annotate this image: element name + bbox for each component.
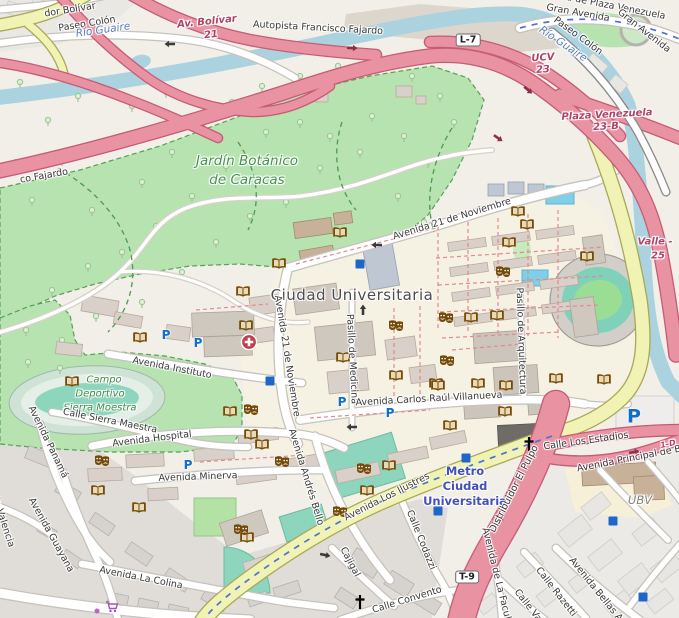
library-icon bbox=[64, 376, 80, 389]
street-label: co Fajardo bbox=[19, 166, 69, 185]
library-icon bbox=[243, 429, 259, 442]
street-label: Gran Avenida bbox=[546, 2, 611, 24]
library-icon bbox=[239, 532, 255, 545]
motorway-label: Av. Bolívar bbox=[177, 13, 238, 30]
motorway-label: 21 bbox=[204, 29, 219, 41]
place-of-worship-icon bbox=[524, 437, 535, 451]
motorway-label: 23-B bbox=[593, 121, 619, 133]
library-icon bbox=[359, 485, 375, 498]
street-label: Autopista Francisco Fajardo bbox=[253, 19, 383, 37]
street-label: Calle Convento bbox=[371, 584, 443, 616]
library-icon bbox=[463, 312, 479, 325]
motorway-label: Valle - bbox=[638, 237, 673, 248]
library-icon bbox=[388, 370, 404, 383]
street-label: Avenida Bellas Ar bbox=[567, 555, 628, 618]
library-icon bbox=[254, 439, 270, 452]
motorway-label: Plaza Venezuela bbox=[561, 107, 653, 123]
motorway-label: 23 bbox=[536, 64, 551, 76]
library-icon bbox=[442, 420, 458, 433]
parking-icon: P bbox=[162, 329, 171, 341]
street-label: Avenida Panamá bbox=[26, 404, 71, 480]
campus-label: UBV bbox=[628, 493, 652, 507]
street-label: Calle Sierra Maestra bbox=[62, 406, 158, 435]
street-label: Avenida Minerva bbox=[158, 470, 237, 484]
map-canvas[interactable]: PPPPPPdor BolívarPaseo ColónAutopista Fr… bbox=[0, 0, 679, 618]
metro-station-label: Ciudad bbox=[443, 479, 488, 493]
street-label: Pasillo de Arquitectura bbox=[514, 287, 529, 394]
water-label: Río Guaire bbox=[75, 20, 131, 40]
street-label: Avenida 21 de Noviembre bbox=[392, 196, 513, 242]
metro-entrance-icon bbox=[266, 377, 275, 386]
library-icon bbox=[238, 320, 254, 333]
metro-entrance-icon bbox=[639, 593, 648, 602]
water-label: Río Guaire bbox=[537, 24, 589, 65]
park-label: Campo bbox=[86, 375, 121, 386]
route-ref-badge: L-7 bbox=[456, 34, 481, 47]
street-label: Paseo Colón bbox=[58, 14, 117, 34]
street-label: a de Plaza Venezuela bbox=[566, 0, 667, 22]
park-label: Sierra Moestra bbox=[63, 403, 136, 414]
library-icon bbox=[430, 380, 446, 393]
street-label: Avenida La Colina bbox=[98, 565, 183, 592]
street-label: Distribuidor El Pulpo bbox=[487, 444, 541, 535]
street-label: Avenida Guayana bbox=[26, 496, 76, 574]
map-overlay: PPPPPPdor BolívarPaseo ColónAutopista Fr… bbox=[0, 0, 679, 618]
theatre-icon bbox=[243, 404, 259, 416]
street-label: Cajigal bbox=[338, 545, 363, 579]
park-label: Jardín Botánico bbox=[196, 153, 298, 169]
metro-entrance-icon bbox=[609, 517, 618, 526]
library-icon bbox=[222, 406, 238, 419]
street-label: Avenida Instituto bbox=[132, 355, 213, 381]
park-label: de Caracas bbox=[209, 172, 284, 188]
library-icon bbox=[470, 378, 486, 391]
library-icon bbox=[335, 352, 351, 365]
street-label: Gran Avenida bbox=[615, 7, 672, 55]
metro-station-label: Metro bbox=[446, 464, 484, 478]
library-icon bbox=[548, 373, 564, 386]
library-icon bbox=[489, 310, 505, 323]
metro-entrance-icon bbox=[356, 260, 365, 269]
street-label: Avenida Los Ilustres bbox=[342, 471, 431, 524]
street-label: Avenida Principal de B bbox=[576, 444, 679, 475]
library-icon bbox=[332, 227, 348, 240]
library-icon bbox=[497, 406, 513, 419]
parking-icon: P bbox=[338, 396, 347, 408]
library-icon bbox=[381, 460, 397, 473]
theatre-icon bbox=[274, 456, 290, 468]
street-label: Calle Razetti bbox=[533, 565, 578, 618]
shop-icon bbox=[95, 609, 100, 614]
library-icon bbox=[596, 374, 612, 387]
street-label: Avenida Carlos Raúl Villanueva bbox=[355, 390, 502, 409]
theatre-icon bbox=[233, 524, 249, 536]
place-of-worship-icon bbox=[355, 595, 366, 609]
library-icon bbox=[498, 380, 514, 393]
parking-icon: P bbox=[184, 459, 193, 471]
theatre-icon bbox=[332, 506, 348, 518]
library-icon bbox=[519, 219, 535, 232]
street-label: Avenida Hospital bbox=[112, 429, 192, 450]
parking-icon-large: P bbox=[627, 408, 641, 427]
street-label: Avenida Andrés Bello bbox=[286, 427, 326, 526]
library-icon bbox=[501, 237, 517, 250]
parking-icon: P bbox=[386, 407, 395, 419]
library-icon bbox=[90, 485, 106, 498]
motorway-label: 25 bbox=[651, 251, 665, 262]
street-label: Pasillo de Medicina bbox=[344, 314, 360, 405]
theatre-icon bbox=[439, 355, 455, 367]
theatre-icon bbox=[356, 463, 372, 475]
library-icon bbox=[579, 251, 595, 264]
parking-icon: P bbox=[194, 337, 203, 349]
place-label: Ciudad Universitaria bbox=[271, 286, 434, 304]
library-icon bbox=[510, 206, 526, 219]
street-label: dor Bolívar bbox=[44, 1, 97, 20]
park-label: Deportivo bbox=[75, 389, 124, 400]
street-label: Paseo Colón bbox=[551, 15, 604, 58]
theatre-icon bbox=[438, 312, 454, 324]
motorway-label: 1-D bbox=[659, 438, 676, 450]
library-icon bbox=[132, 332, 148, 345]
library-icon bbox=[271, 258, 287, 271]
street-label: Calle Los Estadios bbox=[543, 430, 629, 453]
street-label: Calle Codazzi bbox=[404, 508, 438, 571]
theatre-icon bbox=[388, 320, 404, 332]
library-icon bbox=[235, 286, 251, 299]
route-ref-badge: T-9 bbox=[455, 571, 479, 584]
metro-entrance-icon bbox=[462, 454, 471, 463]
library-icon bbox=[428, 378, 444, 391]
theatre-icon bbox=[94, 455, 110, 467]
street-label: Avenida 21 de Noviembre bbox=[272, 294, 302, 417]
supermarket-icon bbox=[105, 601, 119, 613]
street-label: da Valencia bbox=[0, 493, 17, 548]
hospital-icon bbox=[241, 334, 258, 351]
metro-station-label: Universitaria bbox=[423, 494, 507, 508]
library-icon bbox=[131, 502, 147, 515]
street-label: Avenida de La Facultad bbox=[479, 526, 516, 618]
theatre-icon bbox=[495, 266, 511, 278]
metro-entrance-icon bbox=[434, 507, 443, 516]
motorway-label: UCV bbox=[531, 52, 555, 65]
street-label: Calle Var bbox=[512, 587, 547, 618]
